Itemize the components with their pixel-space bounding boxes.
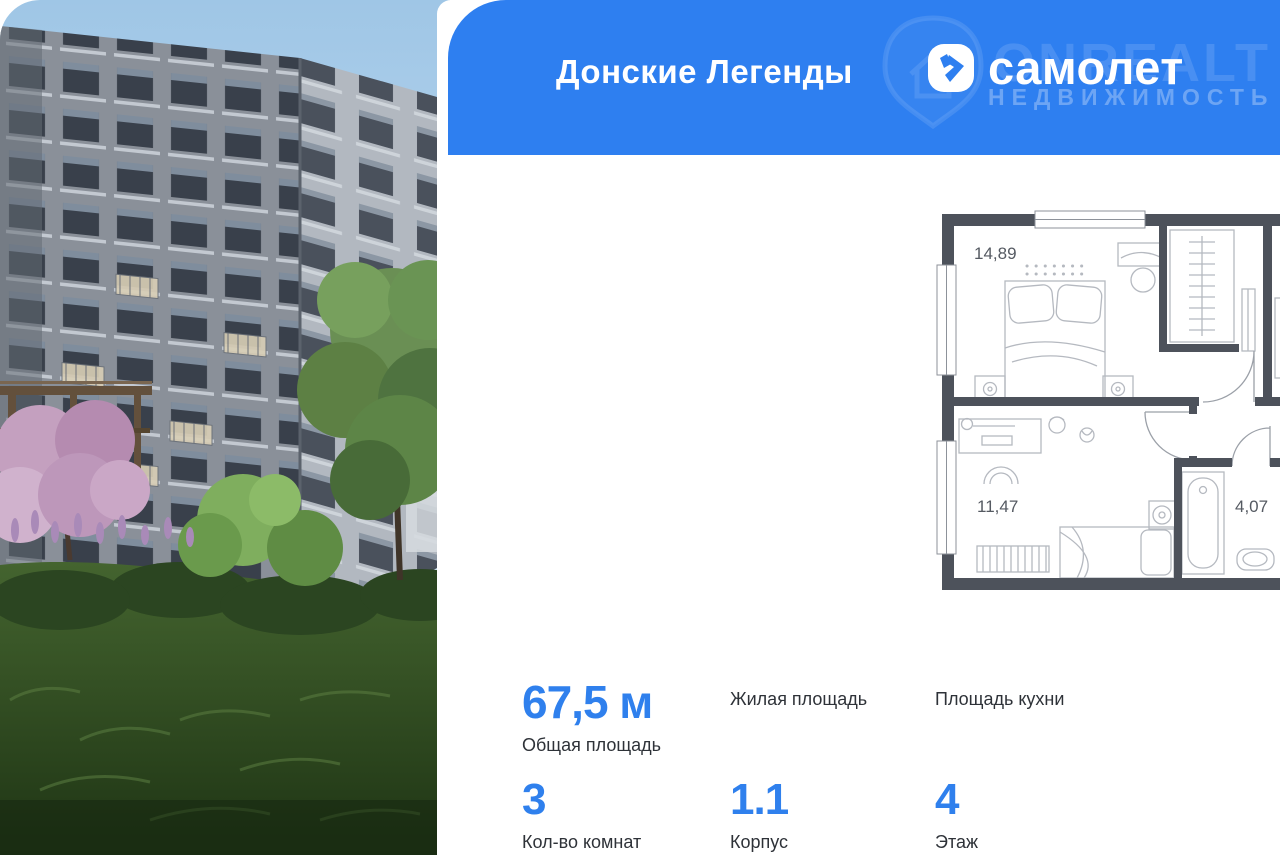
stat-living-area: Жилая площадь xyxy=(730,679,867,710)
room-area-bedroom-1: 14,89 xyxy=(974,244,1017,263)
stat-building-value: 1.1 xyxy=(730,778,788,822)
stat-floor-value: 4 xyxy=(935,778,978,822)
stat-total-area: 67,5 м Общая площадь xyxy=(522,679,661,756)
stat-floor: 4 Этаж xyxy=(935,778,978,853)
stat-kitchen-area-label: Площадь кухни xyxy=(935,689,1064,710)
stat-rooms: 3 Кол-во комнат xyxy=(522,778,641,853)
stat-living-area-label: Жилая площадь xyxy=(730,689,867,710)
floor-plan: 14,89 10,33 11,43 11,47 4,07 1,89 5,97 3… xyxy=(929,202,1280,667)
project-title: Донские Легенды xyxy=(556,53,853,91)
walls xyxy=(942,214,1280,590)
stat-rooms-value: 3 xyxy=(522,778,641,822)
brand-logo: самолет xyxy=(928,40,1184,95)
stat-total-area-label: Общая площадь xyxy=(522,735,661,756)
stat-floor-label: Этаж xyxy=(935,832,978,853)
stat-kitchen-area: Площадь кухни xyxy=(935,679,1064,710)
stat-rooms-label: Кол-во комнат xyxy=(522,832,641,853)
stat-building: 1.1 Корпус xyxy=(730,778,788,853)
stat-total-area-value: 67,5 м xyxy=(522,679,661,725)
content-panel: ONREALT НЕДВИЖИМОСТЬ Донские Легенды сам… xyxy=(437,0,1280,855)
stat-building-label: Корпус xyxy=(730,832,788,853)
building-photo xyxy=(0,0,450,855)
header-banner: ONREALT НЕДВИЖИМОСТЬ Донские Легенды сам… xyxy=(448,0,1280,155)
samolet-logo-icon xyxy=(928,44,974,92)
listing-card: ONREALT НЕДВИЖИМОСТЬ Донские Легенды сам… xyxy=(0,0,1280,855)
brand-name: самолет xyxy=(988,40,1184,95)
room-area-bathroom: 4,07 xyxy=(1235,497,1268,516)
room-area-bedroom-3: 11,47 xyxy=(977,497,1018,516)
